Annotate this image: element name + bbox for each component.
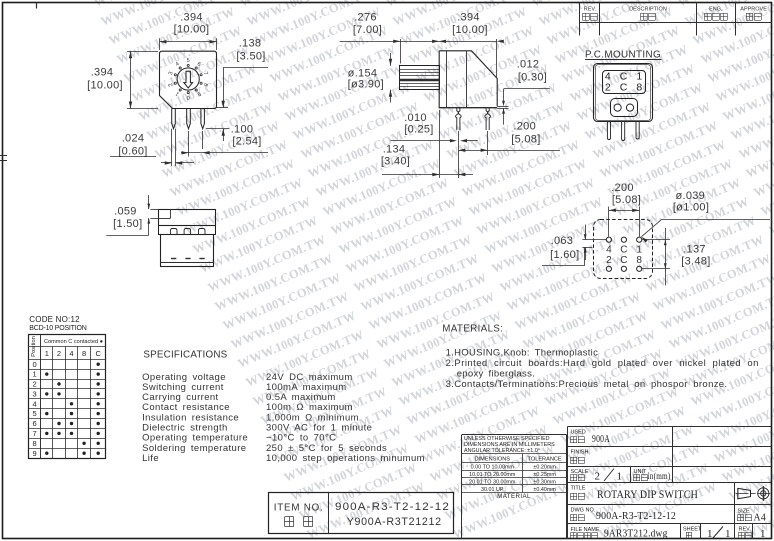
- svg-text:900A-R3-T2-12-12: 900A-R3-T2-12-12: [335, 501, 450, 513]
- svg-text:.010: .010: [404, 112, 427, 124]
- svg-text:TITLE: TITLE: [571, 486, 586, 492]
- svg-text:2: 2: [57, 349, 61, 358]
- svg-text:[5.08]: [5.08]: [511, 134, 540, 146]
- svg-text:ITEM NO.: ITEM NO.: [274, 502, 324, 513]
- svg-text:REV.: REV.: [584, 7, 597, 13]
- svg-text:.138: .138: [239, 38, 262, 50]
- svg-text:SPECIFICATIONS: SPECIFICATIONS: [143, 350, 227, 361]
- svg-text:.024: .024: [122, 133, 145, 145]
- svg-text:2: 2: [605, 82, 611, 94]
- svg-text:CODE NO:12: CODE NO:12: [29, 315, 80, 324]
- svg-text:[0.25]: [0.25]: [404, 124, 433, 136]
- svg-text:[3.40]: [3.40]: [381, 156, 410, 168]
- svg-text:.276: .276: [354, 11, 377, 23]
- svg-text:BCD-10 POSITION: BCD-10 POSITION: [29, 325, 86, 332]
- svg-text:1: 1: [707, 528, 713, 540]
- svg-text:.137: .137: [683, 244, 706, 256]
- svg-text:2.Printed circuit boards:Hard: 2.Printed circuit boards:Hard gold plate…: [446, 358, 759, 369]
- svg-text:9AR3T212.dwg: 9AR3T212.dwg: [604, 529, 668, 540]
- svg-text:.200: .200: [513, 121, 536, 133]
- svg-text:[0.30]: [0.30]: [518, 72, 547, 84]
- svg-text:0: 0: [187, 94, 190, 100]
- svg-text:[10.00]: [10.00]: [452, 24, 488, 36]
- svg-text:ENG.: ENG.: [709, 7, 723, 13]
- svg-text:2: 2: [606, 255, 612, 266]
- svg-text:MATERIALS:: MATERIALS:: [442, 323, 503, 335]
- svg-text:P.C.MOUNTING: P.C.MOUNTING: [585, 50, 661, 61]
- svg-text:DIMENSIONS: DIMENSIONS: [475, 457, 511, 463]
- svg-text:900A-R3-T2-12-12: 900A-R3-T2-12-12: [596, 511, 676, 522]
- svg-text:1: 1: [33, 370, 37, 379]
- svg-text:APPROVE: APPROVE: [740, 7, 767, 13]
- svg-text:3.Contacts/Terminations:Precio: 3.Contacts/Terminations:Precious metal o…: [446, 379, 728, 390]
- svg-text:.063: .063: [551, 235, 574, 247]
- svg-text:8: 8: [636, 255, 642, 266]
- svg-text:0.00 TO 10.00mm: 0.00 TO 10.00mm: [471, 465, 515, 471]
- svg-text:1.HOUSING,Knob: Thermoplastic: 1.HOUSING,Knob: Thermoplastic: [446, 347, 599, 358]
- svg-text:A4: A4: [754, 512, 767, 524]
- svg-text:8: 8: [82, 349, 86, 358]
- svg-text:SCALE: SCALE: [571, 469, 589, 475]
- svg-text:.394: .394: [180, 12, 203, 24]
- svg-text:epoxy fiberglass.: epoxy fiberglass.: [457, 369, 535, 380]
- svg-text:[ø1.00]: [ø1.00]: [673, 202, 709, 214]
- svg-text:C: C: [620, 255, 627, 266]
- svg-text:[1.60]: [1.60]: [550, 249, 579, 261]
- svg-text:9: 9: [33, 449, 37, 458]
- svg-text:[3.50]: [3.50]: [236, 51, 265, 63]
- svg-text:FINISH: FINISH: [571, 450, 589, 456]
- svg-text:[10.00]: [10.00]: [87, 80, 123, 92]
- svg-text:.012: .012: [517, 59, 540, 71]
- svg-text:Life: Life: [142, 453, 159, 464]
- svg-text:SHEET: SHEET: [683, 527, 702, 533]
- svg-text:in(mm): in(mm): [648, 471, 671, 482]
- svg-text:C: C: [620, 82, 628, 94]
- svg-text:1: 1: [760, 528, 766, 540]
- svg-text:10,000 step operations minumum: 10,000 step operations minumum: [266, 453, 425, 464]
- svg-text:[10.00]: [10.00]: [174, 24, 210, 36]
- svg-text:USED: USED: [571, 430, 586, 436]
- svg-text:0: 0: [33, 360, 37, 369]
- svg-text:.394: .394: [91, 67, 114, 79]
- svg-text:8: 8: [33, 439, 37, 448]
- svg-text:4: 4: [606, 244, 612, 255]
- svg-text:DWG NO.: DWG NO.: [571, 508, 596, 514]
- svg-text:SIZE: SIZE: [738, 509, 751, 515]
- svg-text:.134: .134: [383, 144, 406, 156]
- svg-text:C: C: [620, 244, 627, 255]
- svg-text:.059: .059: [114, 206, 137, 218]
- svg-text:TOLERANCE: TOLERANCE: [528, 457, 562, 463]
- svg-text:5: 5: [187, 58, 190, 64]
- svg-text:MATERIAL: MATERIAL: [497, 493, 531, 500]
- svg-text:±0.20mm: ±0.20mm: [533, 465, 556, 471]
- svg-text:900A: 900A: [592, 434, 610, 445]
- svg-text:[5.08]: [5.08]: [612, 194, 641, 206]
- svg-text:2: 2: [595, 471, 601, 483]
- svg-text:[ø3.90]: [ø3.90]: [348, 79, 384, 91]
- svg-text:4: 4: [69, 349, 73, 358]
- svg-text:3: 3: [33, 390, 37, 399]
- svg-text:.100: .100: [231, 124, 254, 136]
- svg-text:[7.00]: [7.00]: [353, 24, 382, 36]
- svg-text:DESCRIPTION: DESCRIPTION: [629, 7, 667, 13]
- svg-text:Position: Position: [31, 336, 37, 357]
- svg-text:1: 1: [617, 471, 623, 483]
- svg-text:.394: .394: [457, 11, 480, 23]
- svg-text:ROTARY DIP SWITCH: ROTARY DIP SWITCH: [597, 489, 698, 501]
- svg-text:4: 4: [33, 399, 37, 408]
- svg-text:Y900A-R3T21212: Y900A-R3T21212: [347, 516, 442, 528]
- svg-text:[3.48]: [3.48]: [681, 256, 710, 268]
- svg-text:REV.: REV.: [739, 527, 752, 533]
- svg-text:1: 1: [636, 244, 642, 255]
- svg-text:.200: .200: [611, 182, 634, 194]
- svg-text:UNIT: UNIT: [634, 469, 647, 475]
- svg-text:[2.54]: [2.54]: [232, 136, 261, 148]
- svg-text:Common C contacted ●: Common C contacted ●: [44, 339, 103, 345]
- svg-text:1: 1: [725, 528, 731, 540]
- svg-text:6: 6: [33, 419, 37, 428]
- svg-text:7: 7: [33, 429, 37, 438]
- svg-text:FILE NAME: FILE NAME: [571, 527, 600, 533]
- svg-text:[1.50]: [1.50]: [113, 218, 142, 230]
- svg-text:1: 1: [45, 349, 49, 358]
- svg-text:8: 8: [636, 82, 642, 94]
- svg-text:5: 5: [33, 409, 37, 418]
- svg-text:2: 2: [33, 380, 37, 389]
- svg-text:[0.60]: [0.60]: [118, 146, 147, 158]
- svg-text:C: C: [95, 349, 101, 358]
- svg-text:ø.039: ø.039: [675, 190, 705, 202]
